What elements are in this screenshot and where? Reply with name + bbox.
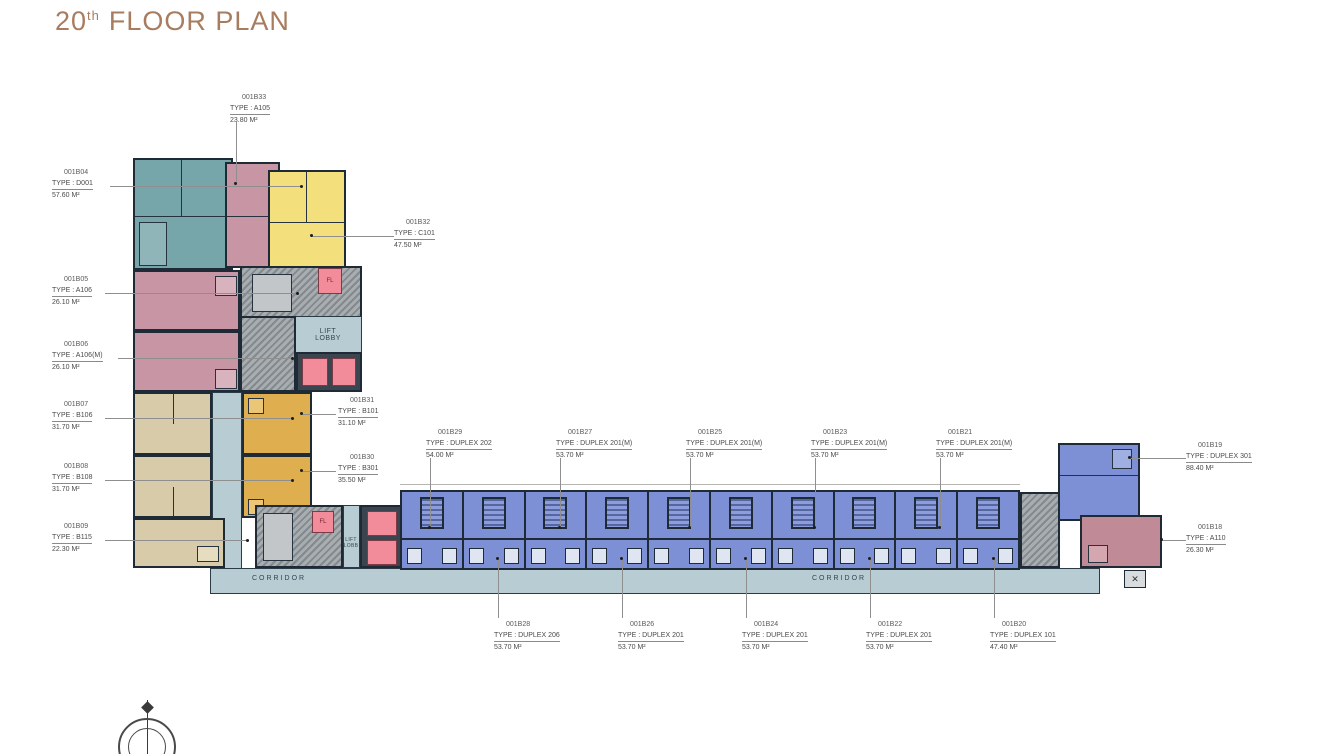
unit-type: TYPE : DUPLEX 206 [494,631,560,642]
unit-number: 001B32 [406,218,435,227]
unit-label-001B06: 001B06TYPE : A106(M)26.10 M² [52,340,103,372]
unit-bath-room [901,548,916,564]
unit-area: 53.70 M² [811,451,887,460]
unit-block-001B31 [242,392,312,455]
leader-line [118,358,293,359]
lift-car [367,511,397,536]
unit-type: TYPE : A105 [230,104,270,115]
unit-type: TYPE : B115 [52,533,92,544]
leader-line [302,414,336,415]
fire-lift: FL [318,268,342,294]
wing-unit-001B22 [835,492,897,568]
unit-number: 001B33 [242,93,270,102]
unit-number: 001B25 [698,428,762,437]
interior-room [197,546,219,562]
unit-number: 001B04 [64,168,93,177]
unit-stair-core [852,497,876,529]
unit-type: TYPE : B101 [338,407,378,418]
unit-label-001B33: 001B33TYPE : A10523.80 M² [230,93,270,125]
unit-block-001B18 [1080,515,1162,568]
leader-line [430,458,431,528]
unit-type: TYPE : A110 [1186,534,1226,545]
unit-type: TYPE : DUPLEX 201(M) [686,439,762,450]
lift-lobb-text-2: LOBB [344,543,359,549]
service-core-right [1020,492,1060,568]
unit-bath-room [469,548,484,564]
leader-line [110,186,302,187]
leader-dot [558,526,561,529]
leader-dot [296,292,299,295]
unit-bath-room [531,548,546,564]
leader-dot [310,234,313,237]
unit-area: 53.70 M² [618,643,684,652]
unit-block-001B06 [133,331,240,392]
wing-unit-001B25 [649,492,711,568]
wing-unit-001B23 [773,492,835,568]
interior-room [1112,449,1132,469]
interior-wall [306,172,307,222]
leader-line [236,122,237,182]
leader-dot [291,479,294,482]
unit-label-001B26: 001B26TYPE : DUPLEX 20153.70 M² [618,620,684,652]
floor-number-suffix: th [87,8,100,23]
unit-bed-room [751,548,766,564]
page-title: 20thFLOOR PLAN [55,6,290,37]
unit-label-001B19: 001B19TYPE : DUPLEX 30188.40 M² [1186,441,1252,473]
unit-label-001B18: 001B18TYPE : A11026.30 M² [1186,523,1226,555]
unit-number: 001B09 [64,522,92,531]
lift-car [332,358,356,386]
unit-type: TYPE : DUPLEX 301 [1186,452,1252,463]
leader-line [746,560,747,618]
unit-block-001B19 [1058,443,1140,521]
unit-area: 26.10 M² [52,363,103,372]
unit-bed-room [565,548,580,564]
leader-line [1130,458,1186,459]
corridor-horizontal [210,568,1100,594]
unit-bed-room [689,548,704,564]
unit-type: TYPE : DUPLEX 201(M) [936,439,1012,450]
leader-dot [300,185,303,188]
unit-label-001B30: 001B30TYPE : B30135.50 M² [338,453,378,485]
unit-area: 26.10 M² [52,298,92,307]
unit-bath-room [592,548,607,564]
interior-wall [173,394,174,424]
leader-line [690,458,691,528]
unit-block-001B04 [133,158,233,270]
unit-bath-room [407,548,422,564]
unit-bed-room [627,548,642,564]
interior-room [139,222,167,266]
service-core-upper [240,266,362,318]
unit-block-001B09 [133,518,225,568]
unit-area: 53.70 M² [936,451,1012,460]
unit-label-001B29: 001B29TYPE : DUPLEX 20254.00 M² [426,428,492,460]
unit-area: 53.70 M² [686,451,762,460]
leader-line [105,418,293,419]
unit-label-001B31: 001B31TYPE : B10131.10 M² [338,396,378,428]
unit-area: 53.70 M² [742,643,808,652]
unit-area: 35.50 M² [338,476,378,485]
lift-lobby-upper-label: LIFT LOBBY [294,316,362,354]
dimension-line [400,484,1020,485]
leader-dot [938,526,941,529]
unit-bed-room [813,548,828,564]
unit-stair-core [976,497,1000,529]
lift-car [302,358,328,386]
leader-line [312,236,394,237]
leader-line [105,480,293,481]
unit-number: 001B29 [438,428,492,437]
wing-unit-001B29 [402,492,464,568]
unit-type: TYPE : DUPLEX 201(M) [556,439,632,450]
unit-label-001B25: 001B25TYPE : DUPLEX 201(M)53.70 M² [686,428,762,460]
leader-dot [813,526,816,529]
leader-dot [234,182,237,185]
unit-stair-core [791,497,815,529]
unit-label-001B23: 001B23TYPE : DUPLEX 201(M)53.70 M² [811,428,887,460]
unit-number: 001B26 [630,620,684,629]
wing-unit-001B26 [587,492,649,568]
unit-number: 001B06 [64,340,103,349]
unit-number: 001B22 [878,620,932,629]
unit-stair-core [605,497,629,529]
unit-bath-room [654,548,669,564]
unit-type: TYPE : DUPLEX 201 [618,631,684,642]
unit-label-001B07: 001B07TYPE : B10631.70 M² [52,400,92,432]
leader-dot [992,557,995,560]
unit-label-001B08: 001B08TYPE : B10831.70 M² [52,462,92,494]
unit-number: 001B28 [506,620,560,629]
unit-area: 53.70 M² [494,643,560,652]
unit-bath-room [963,548,978,564]
leader-dot [300,469,303,472]
leader-dot [246,539,249,542]
unit-number: 001B20 [1002,620,1056,629]
leader-line [622,560,623,618]
unit-number: 001B18 [1198,523,1226,532]
unit-number: 001B31 [350,396,378,405]
lift-lobby-text-1: LIFT [320,328,336,335]
unit-type: TYPE : DUPLEX 201(M) [811,439,887,450]
unit-area: 26.30 M² [1186,546,1226,555]
unit-label-001B22: 001B22TYPE : DUPLEX 20153.70 M² [866,620,932,652]
unit-area: 53.70 M² [556,451,632,460]
mep-room [263,513,293,561]
leader-line [302,471,336,472]
unit-block-001B07 [133,392,212,455]
unit-area: 47.40 M² [990,643,1056,652]
unit-stair-core [420,497,444,529]
leader-line [560,458,561,528]
floor-plan-canvas: 20thFLOOR PLAN FL LIFT LOBB [0,0,1342,754]
leader-dot [1160,538,1163,541]
interior-room [248,398,264,414]
lift-bank-upper [296,352,362,392]
unit-label-001B05: 001B05TYPE : A10626.10 M² [52,275,92,307]
unit-block-001B32 [268,170,346,268]
leader-dot [1128,456,1131,459]
unit-number: 001B24 [754,620,808,629]
wing-unit-001B20 [958,492,1018,568]
unit-type: TYPE : B301 [338,464,378,475]
unit-type: TYPE : B106 [52,411,92,422]
unit-area: 22.30 M² [52,545,92,554]
unit-label-001B20: 001B20TYPE : DUPLEX 10147.40 M² [990,620,1056,652]
shaft-x-box: ✕ [1124,570,1146,588]
leader-line [105,540,248,541]
unit-area: 47.50 M² [394,241,435,250]
leader-dot [300,412,303,415]
fire-lift: FL [312,511,334,533]
stair-core-upper [240,316,296,392]
corridor-label-left: CORRIDOR [252,575,306,582]
leader-line [994,560,995,618]
unit-type: TYPE : DUPLEX 201 [742,631,808,642]
unit-bed-room [998,548,1013,564]
duplex-wing [400,490,1020,570]
unit-type: TYPE : DUPLEX 201 [866,631,932,642]
unit-type: TYPE : DUPLEX 202 [426,439,492,450]
interior-wall [135,216,231,217]
leader-line [105,293,298,294]
unit-label-001B04: 001B04TYPE : D00157.60 M² [52,168,93,200]
unit-bath-room [778,548,793,564]
unit-area: 31.70 M² [52,423,92,432]
compass-north-tip [141,701,154,714]
interior-wall [1060,475,1138,476]
interior-wall [173,487,174,516]
unit-type: TYPE : DUPLEX 101 [990,631,1056,642]
unit-area: 23.80 M² [230,116,270,125]
unit-label-001B28: 001B28TYPE : DUPLEX 20653.70 M² [494,620,560,652]
unit-number: 001B08 [64,462,92,471]
unit-type: TYPE : D001 [52,179,93,190]
unit-type: TYPE : C101 [394,229,435,240]
leader-dot [428,526,431,529]
leader-line [940,458,941,528]
floor-number: 20 [55,6,87,36]
leader-line [498,560,499,618]
lift-lobby-text-2: LOBBY [315,335,341,342]
unit-number: 001B07 [64,400,92,409]
corridor-label-right: CORRIDOR [812,575,866,582]
lift-car [367,540,397,565]
leader-dot [744,557,747,560]
leader-dot [688,526,691,529]
unit-stair-core [729,497,753,529]
unit-bath-room [840,548,855,564]
unit-label-001B32: 001B32TYPE : C10147.50 M² [394,218,435,250]
unit-block-001B05 [133,270,240,331]
unit-area: 31.70 M² [52,485,92,494]
unit-number: 001B21 [948,428,1012,437]
unit-type: TYPE : A106(M) [52,351,103,362]
leader-line [1162,540,1186,541]
unit-stair-core [543,497,567,529]
leader-line [815,458,816,528]
interior-room [215,369,237,389]
page-title-text: FLOOR PLAN [109,6,290,36]
wing-unit-001B27 [526,492,588,568]
unit-label-001B09: 001B09TYPE : B11522.30 M² [52,522,92,554]
leader-line [870,560,871,618]
unit-stair-core [667,497,691,529]
interior-room [1088,545,1108,563]
interior-wall [181,160,182,216]
unit-type: TYPE : B108 [52,473,92,484]
unit-number: 001B30 [350,453,378,462]
interior-wall [270,222,344,223]
unit-area: 53.70 M² [866,643,932,652]
unit-bath-room [716,548,731,564]
unit-stair-core [914,497,938,529]
wing-unit-001B21 [896,492,958,568]
lift-bank-lower [360,505,402,568]
unit-number: 001B23 [823,428,887,437]
unit-area: 54.00 M² [426,451,492,460]
unit-number: 001B27 [568,428,632,437]
unit-bed-room [936,548,951,564]
unit-stair-core [482,497,506,529]
unit-bed-room [874,548,889,564]
leader-dot [620,557,623,560]
leader-dot [868,557,871,560]
wing-unit-001B28 [464,492,526,568]
unit-label-001B21: 001B21TYPE : DUPLEX 201(M)53.70 M² [936,428,1012,460]
unit-label-001B24: 001B24TYPE : DUPLEX 20153.70 M² [742,620,808,652]
unit-label-001B27: 001B27TYPE : DUPLEX 201(M)53.70 M² [556,428,632,460]
leader-dot [291,357,294,360]
leader-dot [496,557,499,560]
leader-dot [291,417,294,420]
unit-number: 001B19 [1198,441,1252,450]
unit-bed-room [442,548,457,564]
wing-unit-001B24 [711,492,773,568]
unit-type: TYPE : A106 [52,286,92,297]
unit-number: 001B05 [64,275,92,284]
unit-bed-room [504,548,519,564]
unit-block-001B08 [133,455,212,518]
unit-area: 31.10 M² [338,419,378,428]
unit-area: 57.60 M² [52,191,93,200]
unit-area: 88.40 M² [1186,464,1252,473]
